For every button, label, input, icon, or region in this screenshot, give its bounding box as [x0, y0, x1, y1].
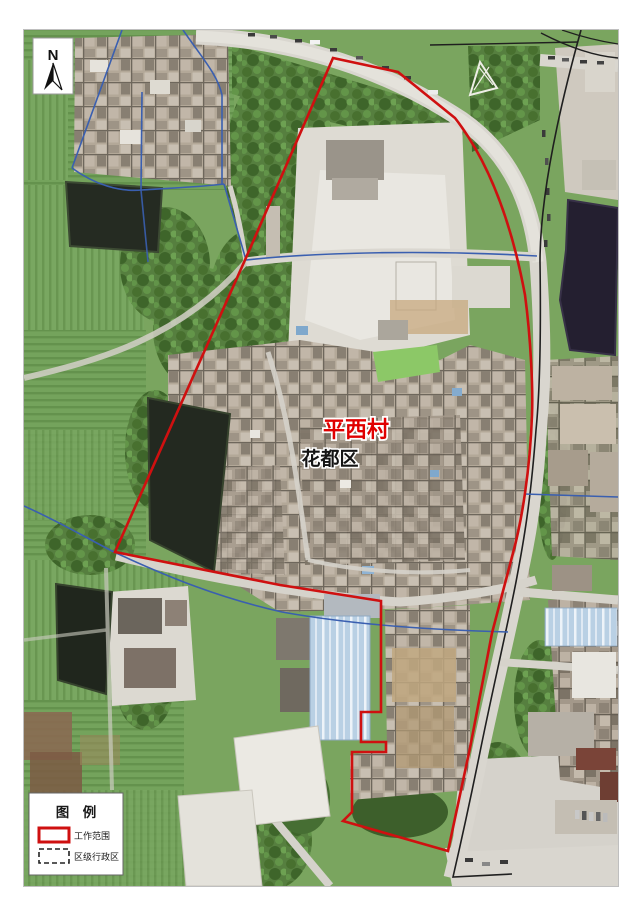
legend: 图 例 工作范围 区级行政区 [29, 793, 123, 875]
work-scope-red-rect [39, 828, 69, 842]
satellite-map: 平西村 花都区 N 图 例 工作范围 区级行政区 [0, 0, 640, 904]
map-page: 平西村 花都区 N 图 例 工作范围 区级行政区 [0, 0, 640, 904]
legend-item-label: 区级行政区 [74, 851, 119, 862]
village-label: 平西村 [323, 417, 389, 442]
north-arrow: N [33, 38, 73, 94]
legend-item-district: 区级行政区 [39, 849, 119, 863]
legend-item-label: 工作范围 [74, 830, 110, 841]
pond-bottom-left [56, 584, 112, 694]
legend-item-work-scope: 工作范围 [39, 828, 110, 842]
district-label: 花都区 [301, 447, 358, 470]
district-dashed-rect [39, 849, 69, 863]
north-label: N [48, 47, 59, 64]
pond-topleft [66, 182, 162, 252]
legend-title: 图 例 [56, 804, 97, 820]
pond-right [560, 200, 618, 355]
